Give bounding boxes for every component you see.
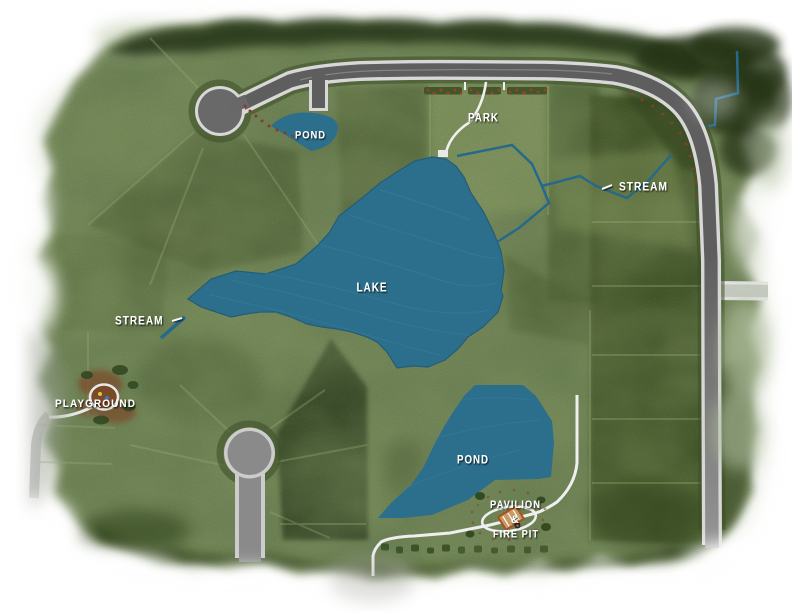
- svg-text:PLAYGROUND: PLAYGROUND: [55, 398, 136, 410]
- svg-text:&: &: [511, 514, 520, 526]
- svg-text:POND: POND: [457, 453, 489, 467]
- svg-text:PARK: PARK: [468, 112, 499, 124]
- svg-text:LAKE: LAKE: [357, 280, 388, 294]
- svg-text:FIRE PIT: FIRE PIT: [493, 529, 539, 541]
- svg-text:STREAM: STREAM: [619, 180, 668, 194]
- svg-text:POND: POND: [295, 130, 326, 142]
- svg-text:STREAM: STREAM: [115, 313, 164, 327]
- svg-text:PAVILION: PAVILION: [490, 499, 541, 511]
